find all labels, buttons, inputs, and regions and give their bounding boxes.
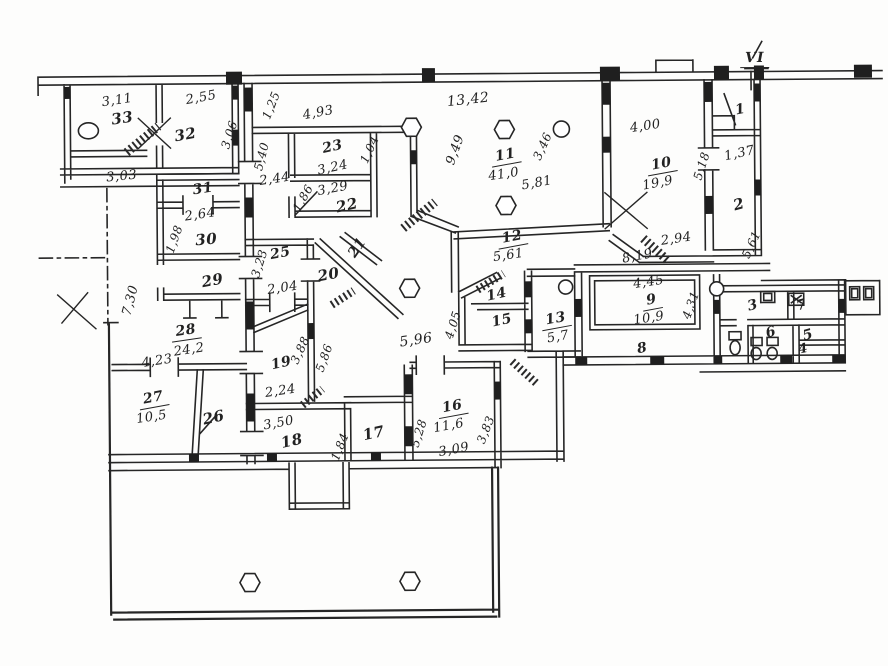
label-dim-9-49: 9,49 (444, 133, 467, 167)
label-dim-1-37: 1,37 (723, 144, 756, 163)
label-room-16: 16 (436, 397, 469, 419)
label-room-7: 7 (795, 297, 809, 313)
label-dim-2-94: 2,94 (660, 230, 693, 247)
label-dim-4-05: 4,05 (443, 309, 463, 340)
label-dim-5-81: 5,81 (520, 174, 553, 192)
label-room-18: 18 (280, 432, 305, 451)
label-dim-2-04: 2,04 (266, 280, 299, 297)
label-dim-10-9: 10,9 (633, 310, 666, 327)
label-dim-1-25: 1,25 (260, 90, 282, 121)
label-dim-3-29: 3,29 (316, 180, 349, 198)
label-dim-1-04: 1,04 (358, 134, 381, 165)
label-dim-5-61-a: 5,61 (492, 247, 525, 264)
label-dim-5-61-b: 5,61 (740, 229, 763, 260)
label-room-6: 6 (764, 324, 778, 340)
label-dim-5-7: 5,7 (546, 329, 570, 346)
label-room-25: 25 (269, 245, 292, 262)
floor-plan: 3,11332,55323,031,253,065,402,44312,6430… (0, 0, 888, 666)
label-dim-41-0: 41,0 (487, 166, 520, 183)
label-dim-4-93: 4,93 (302, 104, 335, 122)
label-dim-4-31: 4,31 (680, 290, 701, 321)
label-dim-1-84: 1,84 (329, 431, 351, 462)
label-dim-3-03: 3,03 (106, 169, 138, 185)
label-dim-4-23: 4,23 (141, 353, 174, 370)
label-dim-7-30: 7,30 (121, 284, 141, 317)
label-dim-2-55: 2,55 (185, 89, 218, 107)
label-dim-13-42: 13,42 (446, 90, 490, 109)
label-dim-11-6: 11,6 (432, 417, 465, 435)
label-dim-5-18: 5,18 (692, 150, 712, 181)
label-dim-5-28: 5,28 (409, 418, 429, 449)
label-room-10: 10 (645, 154, 678, 176)
labels-layer: 3,11332,55323,031,253,065,402,44312,6430… (0, 0, 888, 666)
label-dim-1-86: 1,86 (291, 183, 316, 214)
label-dim-3-88: 3,88 (289, 335, 312, 366)
label-mark-vi: VI (740, 51, 770, 68)
label-room-31: 31 (192, 180, 214, 197)
label-dim-8-19: 8,19 (621, 247, 654, 265)
label-room-17: 17 (361, 424, 386, 443)
scanned-floor-plan-page: 3,11332,55323,031,253,065,402,44312,6430… (0, 0, 888, 666)
label-room-20: 20 (316, 266, 340, 285)
label-dim-1-98: 1,98 (164, 224, 185, 255)
label-room-21: 21 (346, 235, 369, 260)
label-dim-3-23: 3,23 (249, 248, 269, 279)
label-room-22: 22 (335, 196, 360, 215)
label-room-23: 23 (321, 138, 344, 156)
label-room-2: 2 (732, 196, 747, 213)
label-room-30: 30 (195, 231, 218, 248)
label-room-29: 29 (200, 271, 224, 290)
label-dim-19-9: 19,9 (641, 174, 674, 192)
label-dim-5-40: 5,40 (252, 141, 271, 172)
label-room-14: 14 (485, 286, 508, 304)
label-dim-24-2: 24,2 (173, 341, 206, 358)
label-dim-2-44: 2,44 (259, 171, 292, 188)
label-room-32: 32 (173, 126, 197, 145)
label-dim-3-83: 3,83 (475, 414, 497, 445)
label-room-28: 28 (170, 321, 203, 342)
label-dim-10-5: 10,5 (135, 409, 168, 426)
label-dim-3-06: 3,06 (219, 119, 239, 150)
label-room-8: 8 (636, 341, 649, 357)
label-dim-5-96: 5,96 (399, 331, 434, 350)
label-dim-3-50: 3,50 (262, 414, 295, 432)
label-dim-3-11: 3,11 (101, 92, 134, 109)
label-dim-3-46: 3,46 (531, 131, 554, 162)
label-room-33: 33 (110, 109, 134, 127)
label-room-26: 26 (201, 408, 226, 427)
label-dim-3-09: 3,09 (438, 441, 471, 459)
label-room-1: 1 (734, 102, 747, 118)
label-dim-2-24: 2,24 (264, 383, 297, 400)
label-room-4: 4 (797, 342, 809, 357)
label-room-3: 3 (746, 297, 760, 313)
label-dim-5-86: 5,86 (314, 342, 335, 373)
label-dim-4-45: 4,45 (632, 274, 665, 291)
label-room-15: 15 (490, 312, 513, 330)
label-dim-4-00: 4,00 (629, 118, 662, 135)
label-dim-3-24: 3,24 (316, 158, 349, 177)
label-dim-2-64: 2,64 (184, 206, 217, 223)
